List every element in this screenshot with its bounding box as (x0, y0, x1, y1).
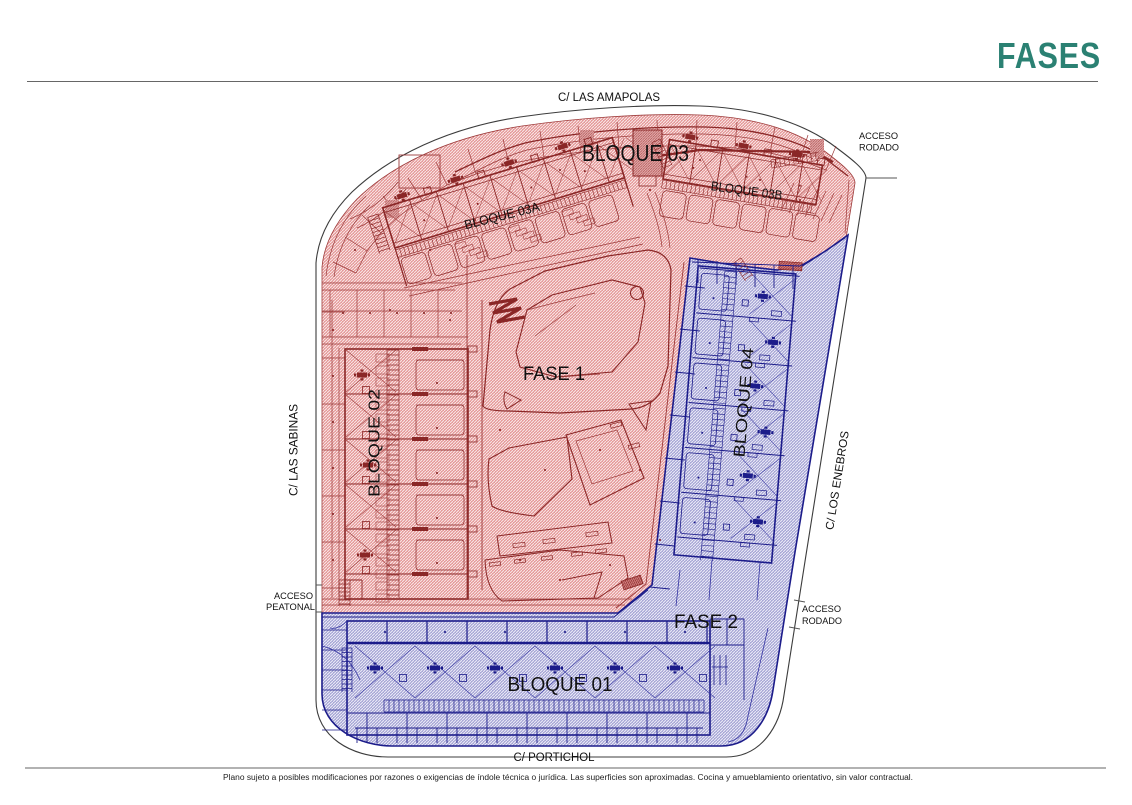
svg-text:RODADO: RODADO (802, 616, 842, 627)
svg-text:Plano sujeto a posibles modifi: Plano sujeto a posibles modificaciones p… (223, 773, 913, 782)
svg-text:BLOQUE 02: BLOQUE 02 (367, 389, 384, 497)
svg-text:FASE 1: FASE 1 (523, 363, 585, 385)
svg-text:RODADO: RODADO (859, 143, 899, 154)
svg-text:BLOQUE 01: BLOQUE 01 (508, 674, 613, 696)
svg-text:PEATONAL: PEATONAL (266, 602, 315, 613)
svg-text:C/ LAS SABINAS: C/ LAS SABINAS (289, 404, 301, 496)
svg-text:BLOQUE 03: BLOQUE 03 (582, 140, 689, 166)
svg-text:ACCESO: ACCESO (802, 604, 841, 615)
svg-text:ACCESO: ACCESO (274, 591, 313, 602)
svg-text:C/ PORTICHOL: C/ PORTICHOL (514, 752, 596, 764)
svg-text:C/ LAS AMAPOLAS: C/ LAS AMAPOLAS (558, 92, 660, 104)
svg-text:FASES: FASES (997, 35, 1101, 76)
svg-text:FASE 2: FASE 2 (674, 611, 738, 633)
svg-text:ACCESO: ACCESO (859, 131, 898, 142)
